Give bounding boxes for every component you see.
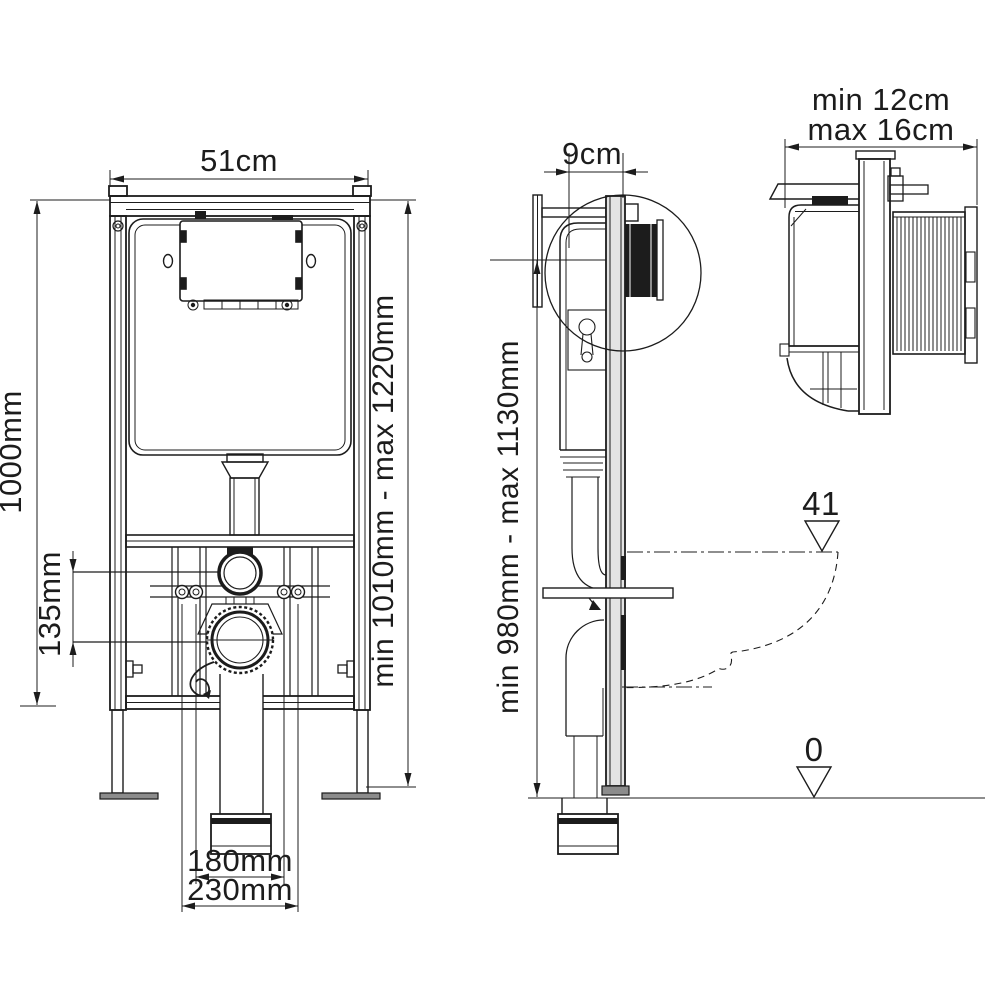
fixing-rod-hole: [292, 586, 305, 599]
wall-distance-max-label: max 16cm: [808, 112, 955, 147]
side-depth-label: 9cm: [562, 136, 622, 171]
front-view: 51cm 1000mm 135mm min 1010mm - max 1220m…: [0, 143, 416, 912]
fixing-rod-hole: [278, 586, 291, 599]
side-drain: [558, 798, 618, 854]
flush-pipe: [222, 454, 268, 535]
front-height-label: 1000mm: [0, 390, 28, 514]
front-range-label: min 1010mm - max 1220mm: [367, 294, 400, 687]
plan-view: min 12cm max 16cm: [770, 82, 977, 414]
mounting-hole: [164, 255, 173, 268]
left-foot-plate: [100, 793, 158, 799]
crossbar: [126, 535, 354, 547]
technical-drawing-sheet: 51cm 1000mm 135mm min 1010mm - max 1220m…: [0, 0, 1000, 1000]
left-leg: [112, 710, 123, 793]
wall-bracket: [347, 661, 354, 677]
right-leg: [357, 710, 368, 793]
outlet-offset-label: 135mm: [32, 551, 67, 657]
side-cistern: [560, 223, 606, 590]
water-inlet-port: [219, 552, 261, 594]
side-foot-plate: [602, 786, 629, 795]
side-outlet-bend: [566, 620, 604, 798]
fixing-rod-hole: [190, 586, 203, 599]
right-foot-plate: [322, 793, 380, 799]
plan-rail: [856, 151, 895, 414]
drawing-canvas: 51cm 1000mm 135mm min 1010mm - max 1220m…: [0, 0, 1000, 1000]
flush-plate-recess: [625, 220, 663, 300]
plan-cistern: [780, 196, 859, 411]
cistern: [129, 211, 351, 455]
drain-pipe: [211, 674, 271, 854]
adjustable-spacer: [893, 207, 977, 363]
level-marker-41-icon: [805, 521, 839, 551]
plan-rod: [888, 168, 928, 201]
front-width-label: 51cm: [200, 143, 278, 178]
side-view: 9cm min 980mm - max 1130mm 41 0: [490, 136, 985, 854]
level-marker-0-icon: [797, 767, 831, 797]
mounting-hole: [307, 255, 316, 268]
bowl-outline: [622, 552, 838, 688]
flush-plate-access-box: [180, 221, 302, 301]
wall-bracket: [126, 661, 133, 677]
bowl-level-label: 41: [802, 485, 840, 522]
fixing-rod-hole: [176, 586, 189, 599]
floor-level-label: 0: [805, 731, 824, 768]
side-rail: [602, 196, 629, 795]
side-range-label: min 980mm - max 1130mm: [492, 340, 525, 714]
fixing-outer-label: 230mm: [187, 872, 293, 907]
